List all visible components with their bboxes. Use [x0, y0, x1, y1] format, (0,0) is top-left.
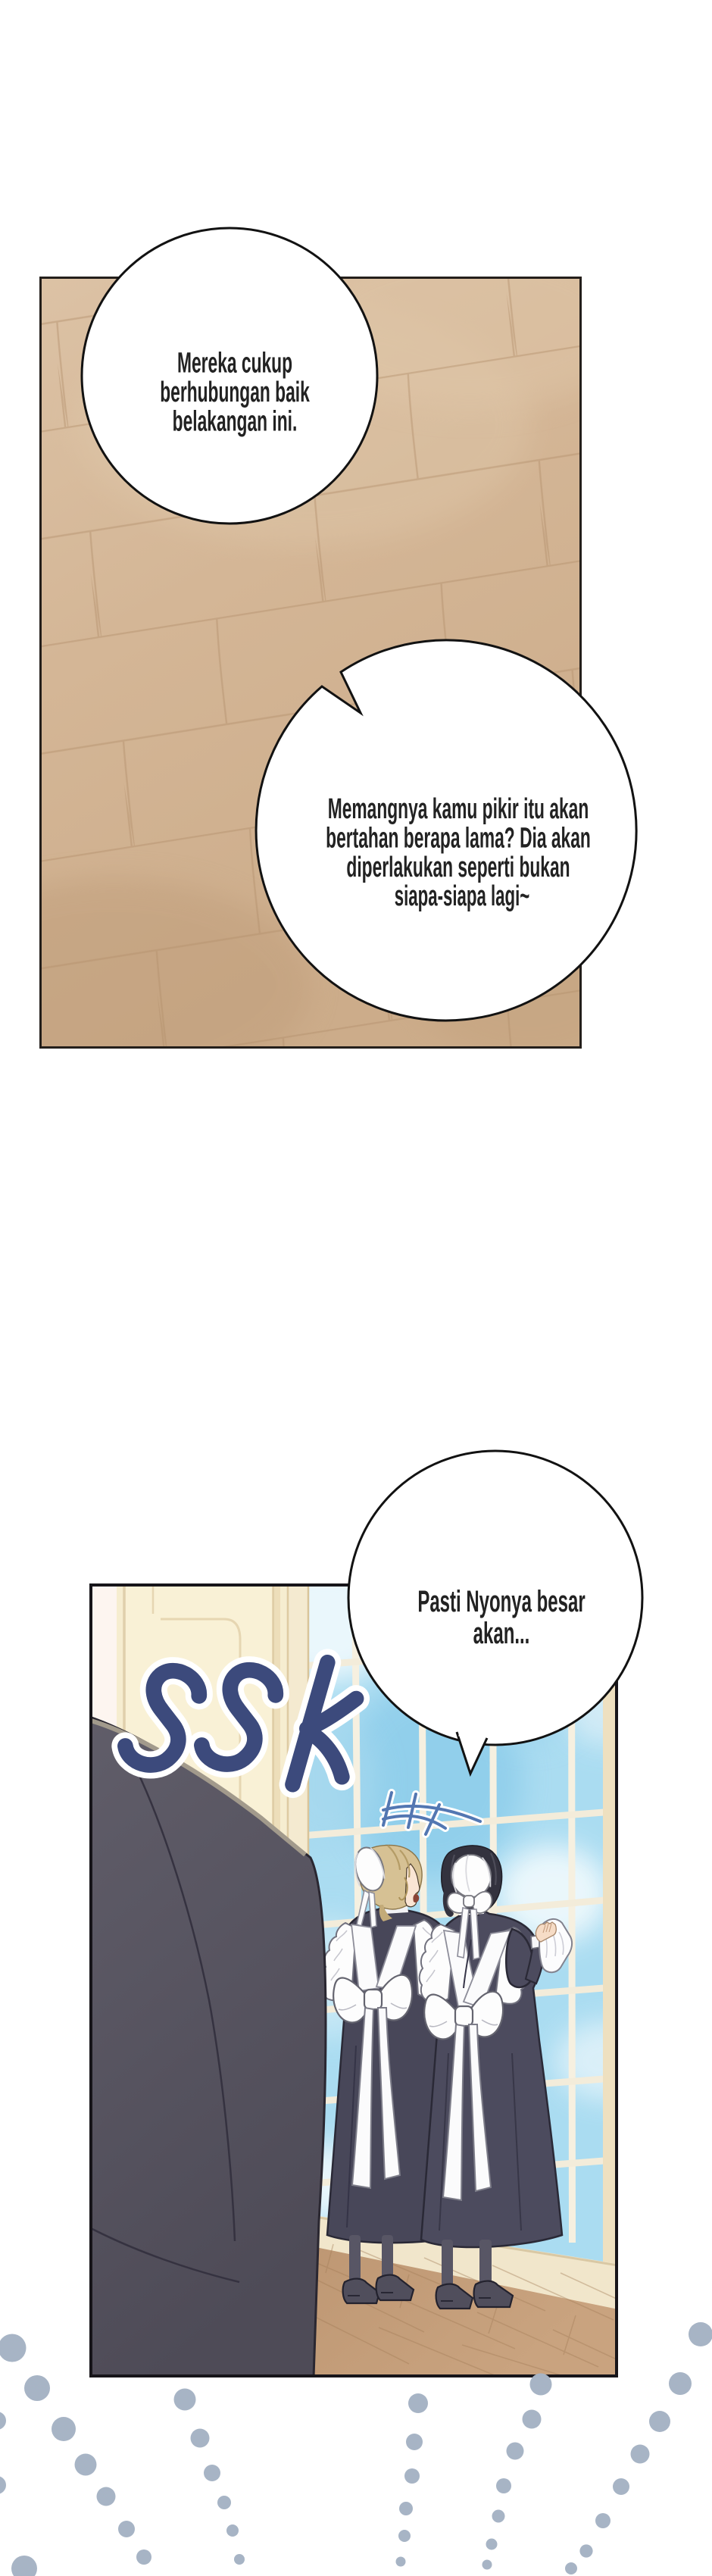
svg-text:akan...: akan...: [473, 1616, 530, 1650]
svg-text:siapa-siapa lagi~: siapa-siapa lagi~: [395, 880, 530, 912]
svg-text:berhubungan baik: berhubungan baik: [160, 376, 310, 408]
svg-text:Pasti Nyonya besar: Pasti Nyonya besar: [417, 1584, 585, 1618]
svg-text:Memangnya kamu pikir itu akan: Memangnya kamu pikir itu akan: [328, 792, 589, 824]
svg-text:belakangan ini.: belakangan ini.: [173, 405, 298, 437]
svg-text:Mereka cukup: Mereka cukup: [177, 347, 292, 379]
svg-text:bertahan berapa lama? Dia akan: bertahan berapa lama? Dia akan: [326, 822, 591, 854]
svg-text:diperlakukan seperti bukan: diperlakukan seperti bukan: [346, 851, 570, 883]
